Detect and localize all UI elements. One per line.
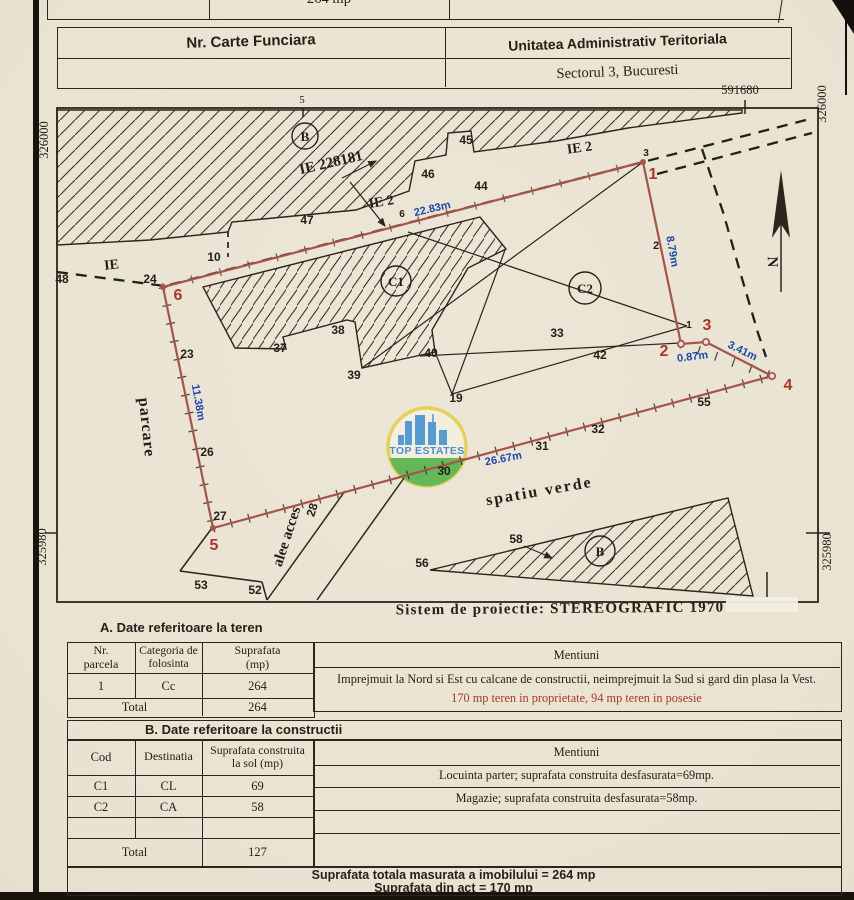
summary-line2: Suprafata din act = 170 mp xyxy=(67,881,840,894)
whiteout-smudge xyxy=(726,597,798,612)
pt-32: 32 xyxy=(591,422,605,436)
pt-3-black: 3 xyxy=(643,148,649,159)
pt-56: 56 xyxy=(415,556,429,570)
north-arrow-icon: N xyxy=(764,170,790,292)
constr-total-value: 127 xyxy=(202,838,313,866)
pt-ie-left: IE xyxy=(103,257,119,273)
pt-2-black: 2 xyxy=(653,240,659,252)
constr-row1-sup: 69 xyxy=(202,775,313,796)
coord-591680: 591680 xyxy=(721,83,759,97)
pt-47: 47 xyxy=(300,213,314,227)
constr-row2-sup: 58 xyxy=(202,796,313,817)
col-suprafata: Suprafata(mp) xyxy=(202,642,313,673)
section-a-title: A. Date referitoare la teren xyxy=(100,620,263,635)
teren-row-cat: Cc xyxy=(135,673,202,698)
pt-31: 31 xyxy=(535,439,549,453)
label-b2: B xyxy=(596,544,605,559)
coord-325980-left: 325980 xyxy=(35,528,49,566)
coord-326000-right: 326000 xyxy=(815,85,829,123)
constr-row2-dest: CA xyxy=(135,796,202,817)
coord-tick-5: 5 xyxy=(299,94,305,106)
cadastral-plan-scan: 264 mp Nr. Carte Funciara Unitatea Admin… xyxy=(0,0,854,900)
constr-row1-cod: C1 xyxy=(67,775,135,796)
dim-11-38: 11.38m xyxy=(189,383,207,421)
col-destinatia: Destinatia xyxy=(135,739,202,775)
site-plan: TOP ESTATES xyxy=(0,82,854,620)
pt-46: 46 xyxy=(421,167,435,181)
label-ie-2b: IE 2 xyxy=(566,139,593,157)
watermark-text: TOP ESTATES xyxy=(389,445,464,457)
corner-2: 2 xyxy=(660,343,669,360)
pt-52: 52 xyxy=(248,583,262,597)
teren-mentiuni-line2: 170 mp teren in proprietate, 94 mp teren… xyxy=(320,691,833,707)
pt-53: 53 xyxy=(194,578,208,592)
pt-45: 45 xyxy=(459,133,473,147)
col-mentiuni-a: Mentiuni xyxy=(313,642,840,667)
teren-row-nr: 1 xyxy=(67,673,135,698)
pt-19: 19 xyxy=(449,391,463,405)
constr-mentiuni-line2: Magazie; suprafata construita desfasurat… xyxy=(320,790,833,807)
pt-55: 55 xyxy=(697,395,711,409)
constr-mentiuni-line1: Locuinta parter; suprafata construita de… xyxy=(320,767,833,785)
teren-row-sup: 264 xyxy=(202,673,313,698)
constr-total-label: Total xyxy=(67,838,202,866)
north-label: N xyxy=(764,256,780,268)
pt-39: 39 xyxy=(347,368,361,382)
label-c2: C2 xyxy=(577,281,593,296)
pt-24: 24 xyxy=(143,272,157,286)
label-ie-2a: IE 2 xyxy=(368,193,395,212)
page-right-border xyxy=(845,0,847,95)
section-b-title: B. Date referitoare la constructii xyxy=(145,722,342,737)
pt-27: 27 xyxy=(213,509,227,523)
col-mentiuni-b: Mentiuni xyxy=(313,739,840,765)
pt-44: 44 xyxy=(474,179,488,193)
pt-38: 38 xyxy=(331,323,345,337)
pt-1-black: 1 xyxy=(686,320,692,331)
watermark-logo: TOP ESTATES xyxy=(388,408,466,486)
corner-1: 1 xyxy=(649,166,658,183)
corner-5: 5 xyxy=(210,537,219,554)
pt-58: 58 xyxy=(509,532,523,546)
building-b-bottom-hatch xyxy=(430,498,753,596)
coord-326000-left: 326000 xyxy=(37,121,51,159)
top-strip-table: 264 mp xyxy=(47,0,784,20)
dim-8-79: 8.79m xyxy=(663,235,680,268)
col-nr-parcela: Nr.parcela xyxy=(67,642,135,673)
pt-6-black: 6 xyxy=(399,209,405,220)
pt-10: 10 xyxy=(207,250,221,264)
label-parcare: parcare xyxy=(135,397,158,458)
pt-30: 30 xyxy=(437,464,451,478)
constr-row2-cod: C2 xyxy=(67,796,135,817)
pt-23: 23 xyxy=(180,347,194,361)
top-strip-value: 264 mp xyxy=(209,0,449,8)
col-categoria: Categoria defolosinta xyxy=(135,642,202,673)
pt-37: 37 xyxy=(273,341,287,355)
pt-42: 42 xyxy=(593,348,607,362)
projection-note: Sistem de proiectie: STEREOGRAFIC 1970 xyxy=(385,598,735,619)
col-cod: Cod xyxy=(67,739,135,775)
pt-40: 40 xyxy=(424,346,438,360)
label-b1: B xyxy=(301,129,310,144)
label-c1: C1 xyxy=(388,274,404,289)
pt-48: 48 xyxy=(55,272,69,286)
label-spatiu-verde: spatiu verde xyxy=(485,474,594,509)
pt-28: 28 xyxy=(304,501,321,518)
teren-total-value: 264 xyxy=(202,698,313,716)
page-corner-wedge xyxy=(832,0,854,34)
building-c1-hatch xyxy=(203,217,506,368)
coord-325980-right: 325980 xyxy=(820,533,834,571)
teren-mentiuni-line1: Imprejmuit la Nord si Est cu calcane de … xyxy=(320,671,833,689)
teren-total-label: Total xyxy=(67,698,202,716)
label-alee-acces: alee acces xyxy=(270,505,304,569)
corner-6: 6 xyxy=(174,287,183,304)
pt-26: 26 xyxy=(200,445,214,459)
constr-row1-dest: CL xyxy=(135,775,202,796)
col-suprafata-constr: Suprafata construitala sol (mp) xyxy=(202,739,313,775)
dim-0-87: 0.87m xyxy=(676,349,709,365)
corner-4: 4 xyxy=(784,377,793,394)
pt-33: 33 xyxy=(550,326,564,340)
corner-3: 3 xyxy=(703,317,712,334)
